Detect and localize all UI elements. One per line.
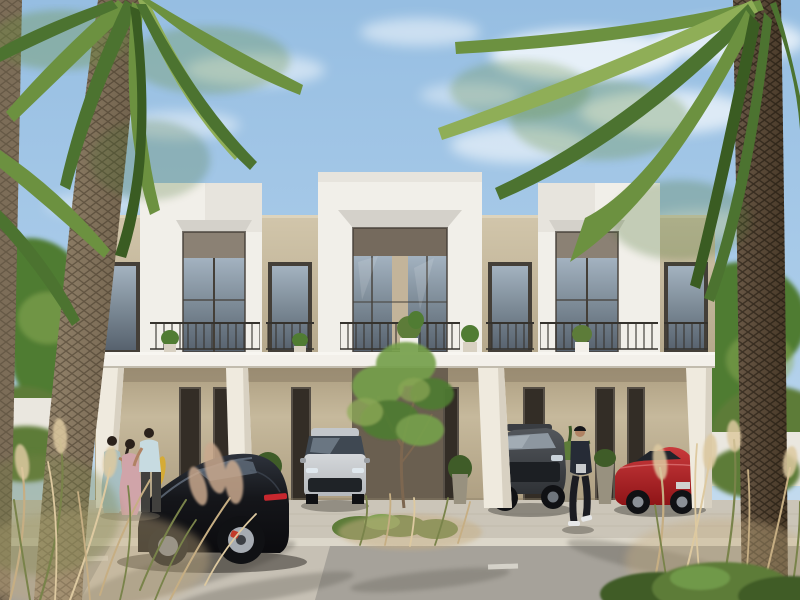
planter	[461, 325, 479, 352]
leg	[585, 476, 587, 518]
leg	[152, 472, 161, 512]
shirt	[139, 440, 161, 473]
headlight	[306, 468, 318, 473]
scene-svg	[0, 0, 800, 600]
person-head	[107, 436, 117, 446]
planter	[292, 333, 308, 352]
tshirt	[576, 464, 586, 473]
person-shadow	[562, 526, 594, 534]
railing-span	[540, 323, 658, 349]
sneaker	[568, 521, 580, 526]
balcony-railing	[150, 323, 708, 349]
railing-span	[486, 323, 534, 349]
header-band	[183, 232, 245, 258]
person-head	[144, 428, 154, 438]
portal-soffit	[176, 220, 252, 232]
headlight	[551, 455, 563, 461]
architectural-render: Photorealistic architectural rendering o…	[0, 0, 800, 600]
headlight	[352, 468, 364, 473]
mirror	[300, 458, 306, 463]
railing-span	[266, 323, 314, 349]
license-plate	[676, 482, 690, 489]
leg	[573, 476, 576, 522]
grille	[308, 478, 362, 492]
mirror	[364, 458, 370, 463]
wheel	[306, 494, 318, 504]
planter	[572, 325, 592, 352]
portal-soffit	[338, 210, 462, 228]
person-head	[125, 439, 135, 449]
wheel	[352, 494, 364, 504]
road-dash	[488, 563, 518, 569]
header-band	[353, 228, 447, 256]
railing-span	[664, 323, 708, 349]
